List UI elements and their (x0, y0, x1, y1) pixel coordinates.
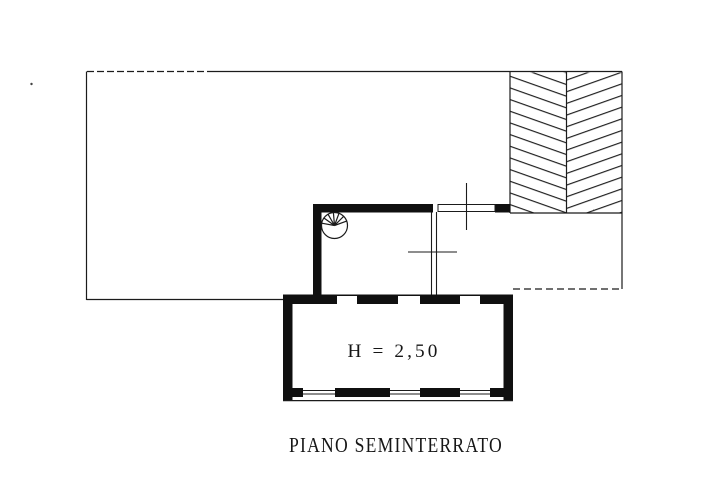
interior-partition (432, 212, 437, 295)
stair-room-top-wall (313, 204, 433, 213)
roof-hatch-left-half (511, 73, 567, 214)
stair-room-top-wall-stub (495, 204, 510, 213)
room-height-label: H = 2,50 (348, 342, 441, 362)
spiral-staircase-treads (322, 213, 347, 226)
stair-room-left-wall (313, 204, 322, 295)
roof-hatch-right-half (567, 73, 623, 214)
spiral-staircase-icon (322, 213, 348, 239)
room-top-window-2 (398, 296, 420, 304)
room-top-window-3 (460, 296, 480, 304)
room-bottom-window-1 (303, 388, 335, 397)
room-right-wall (504, 295, 514, 402)
tick-marks (408, 183, 467, 252)
room-bottom-window-2 (390, 388, 420, 397)
roof-hatch-area (510, 72, 622, 213)
floor-caption: PIANO SEMINTERRATO (289, 433, 503, 457)
floor-plan-page: H = 2,50 PIANO SEMINTERRATO (0, 0, 712, 492)
floor-plan-drawing: H = 2,50 PIANO SEMINTERRATO (0, 0, 712, 492)
room-left-wall (283, 295, 293, 402)
scan-speck (30, 83, 32, 85)
room-bottom-window-3 (460, 388, 490, 397)
room-top-window-1 (337, 296, 357, 304)
